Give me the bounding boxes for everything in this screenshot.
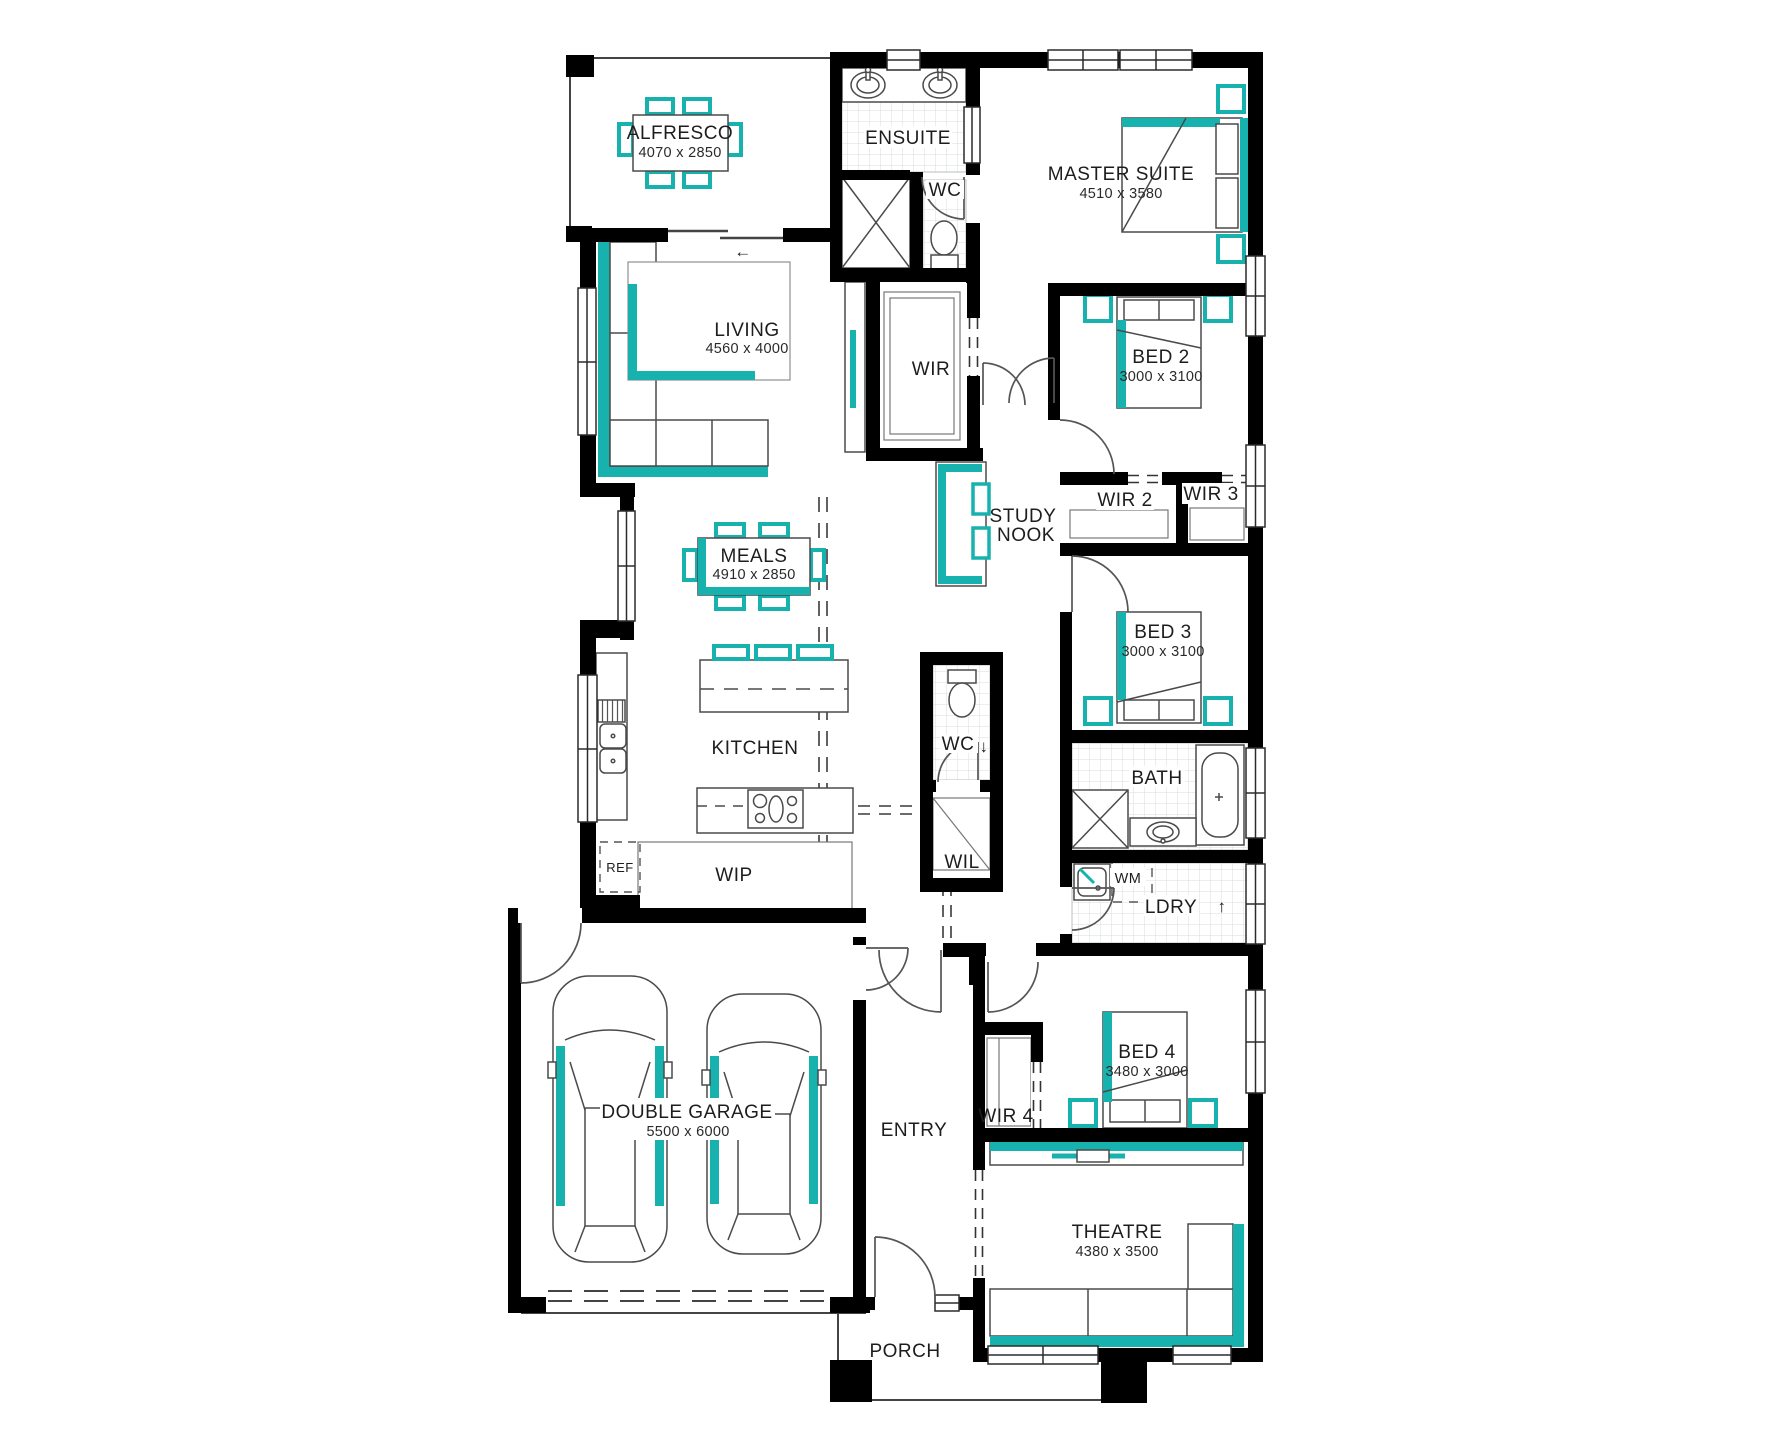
label-wip: WIP [715, 865, 752, 886]
label-master-suite: MASTER SUITE [1048, 164, 1194, 185]
dims-alfresco: 4070 x 2850 [638, 145, 721, 161]
label-bath: BATH [1131, 768, 1182, 789]
sink-drainer [598, 700, 625, 722]
window [578, 675, 597, 822]
bed2-door [1060, 420, 1114, 474]
label-study-nook-2: NOOK [997, 525, 1055, 546]
hall-entry-door [879, 950, 941, 1012]
dims-bed3: 3000 x 3100 [1121, 644, 1204, 660]
label-living: LIVING [714, 320, 779, 341]
label-wm: WM [1115, 871, 1142, 887]
label-wir: WIR [912, 359, 950, 380]
label-ldry: LDRY [1145, 897, 1197, 918]
label-bed2: BED 2 [1132, 347, 1189, 368]
dims-garage: 5500 x 6000 [646, 1124, 729, 1140]
label-bed4: BED 4 [1118, 1042, 1175, 1063]
label-wil: WIL [944, 852, 979, 873]
bath-vanity-icon [1130, 818, 1196, 846]
wall-niche [964, 107, 980, 163]
window [1246, 748, 1265, 838]
laundry-exit-arrow: ↑ [1218, 897, 1227, 916]
garage-internal-door [521, 923, 581, 983]
label-bed3: BED 3 [1134, 622, 1191, 643]
bath-shower-icon [1072, 790, 1128, 848]
hall-double-doors [983, 358, 1054, 405]
kitchen-bench-icon [596, 653, 627, 820]
porch-post [830, 1360, 872, 1402]
window [1246, 445, 1265, 527]
kitchen-island-icon [700, 646, 848, 712]
window [988, 1346, 1098, 1364]
tv-cabinet-icon [990, 1141, 1243, 1165]
window [887, 50, 920, 70]
window [618, 511, 635, 621]
window [935, 1295, 959, 1311]
study-desk-icon [936, 462, 989, 586]
hall-cabinet-icon [845, 282, 865, 452]
label-wir2: WIR 2 [1097, 490, 1152, 511]
floor-plan-page: ALFRESCO 4070 x 2850 ENSUITE WC MASTER S… [0, 0, 1785, 1439]
floor-plan-drawing: ALFRESCO 4070 x 2850 ENSUITE WC MASTER S… [0, 0, 1785, 1439]
label-kitchen: KITCHEN [712, 738, 799, 759]
kitchen-hall-opening [858, 806, 920, 814]
dims-bed4: 3480 x 3000 [1105, 1064, 1188, 1080]
window [1048, 50, 1118, 70]
window [1246, 990, 1265, 1093]
entry-garage-door [866, 948, 908, 990]
slider-arrow: ← [734, 242, 752, 261]
label-alfresco: ALFRESCO [627, 123, 733, 144]
dims-master-suite: 4510 x 3580 [1079, 186, 1162, 202]
garage-panel-door [548, 1291, 828, 1301]
furniture [548, 68, 1248, 1348]
label-study-nook-1: STUDY [990, 506, 1057, 527]
label-ensuite: ENSUITE [865, 128, 951, 149]
label-wir3: WIR 3 [1183, 484, 1238, 505]
dims-living: 4560 x 4000 [705, 341, 788, 357]
dims-bed2: 3000 x 3100 [1119, 369, 1202, 385]
wir2-wardrobe-icon [1070, 510, 1168, 538]
label-theatre: THEATRE [1072, 1222, 1163, 1243]
hall-entry-opening [943, 884, 951, 940]
window [1246, 864, 1265, 944]
window [1173, 1346, 1231, 1364]
label-ensuite-wc: WC [929, 180, 962, 201]
front-door [875, 1237, 935, 1297]
label-garage: DOUBLE GARAGE [601, 1102, 772, 1123]
dims-theatre: 4380 x 3500 [1075, 1244, 1158, 1260]
label-entry: ENTRY [881, 1120, 948, 1141]
laundry-trough-icon [1074, 864, 1110, 900]
label-hall-wc: WC [942, 734, 975, 755]
window [1120, 50, 1192, 70]
window [578, 288, 596, 435]
label-wir4: WIR 4 [978, 1106, 1033, 1127]
wc-arrow: ↓ [980, 737, 989, 756]
label-ref: REF [606, 860, 634, 875]
ensuite-shower-icon [842, 177, 910, 268]
hall-wc-toilet-icon [948, 670, 976, 717]
label-porch: PORCH [869, 1341, 940, 1362]
bed3-door [1072, 556, 1128, 612]
bathtub-icon [1196, 745, 1244, 845]
bed4-door [988, 962, 1038, 1012]
cooktop-bench-icon [697, 788, 853, 833]
ensuite-toilet-icon [931, 221, 958, 269]
ensuite-vanity-icon [842, 68, 966, 103]
window [1246, 256, 1265, 336]
dims-meals: 4910 x 2850 [712, 567, 795, 583]
porch-post [1101, 1360, 1147, 1403]
wir3-wardrobe-icon [1190, 508, 1244, 540]
label-meals: MEALS [721, 546, 788, 567]
alfresco-slider [666, 231, 783, 238]
